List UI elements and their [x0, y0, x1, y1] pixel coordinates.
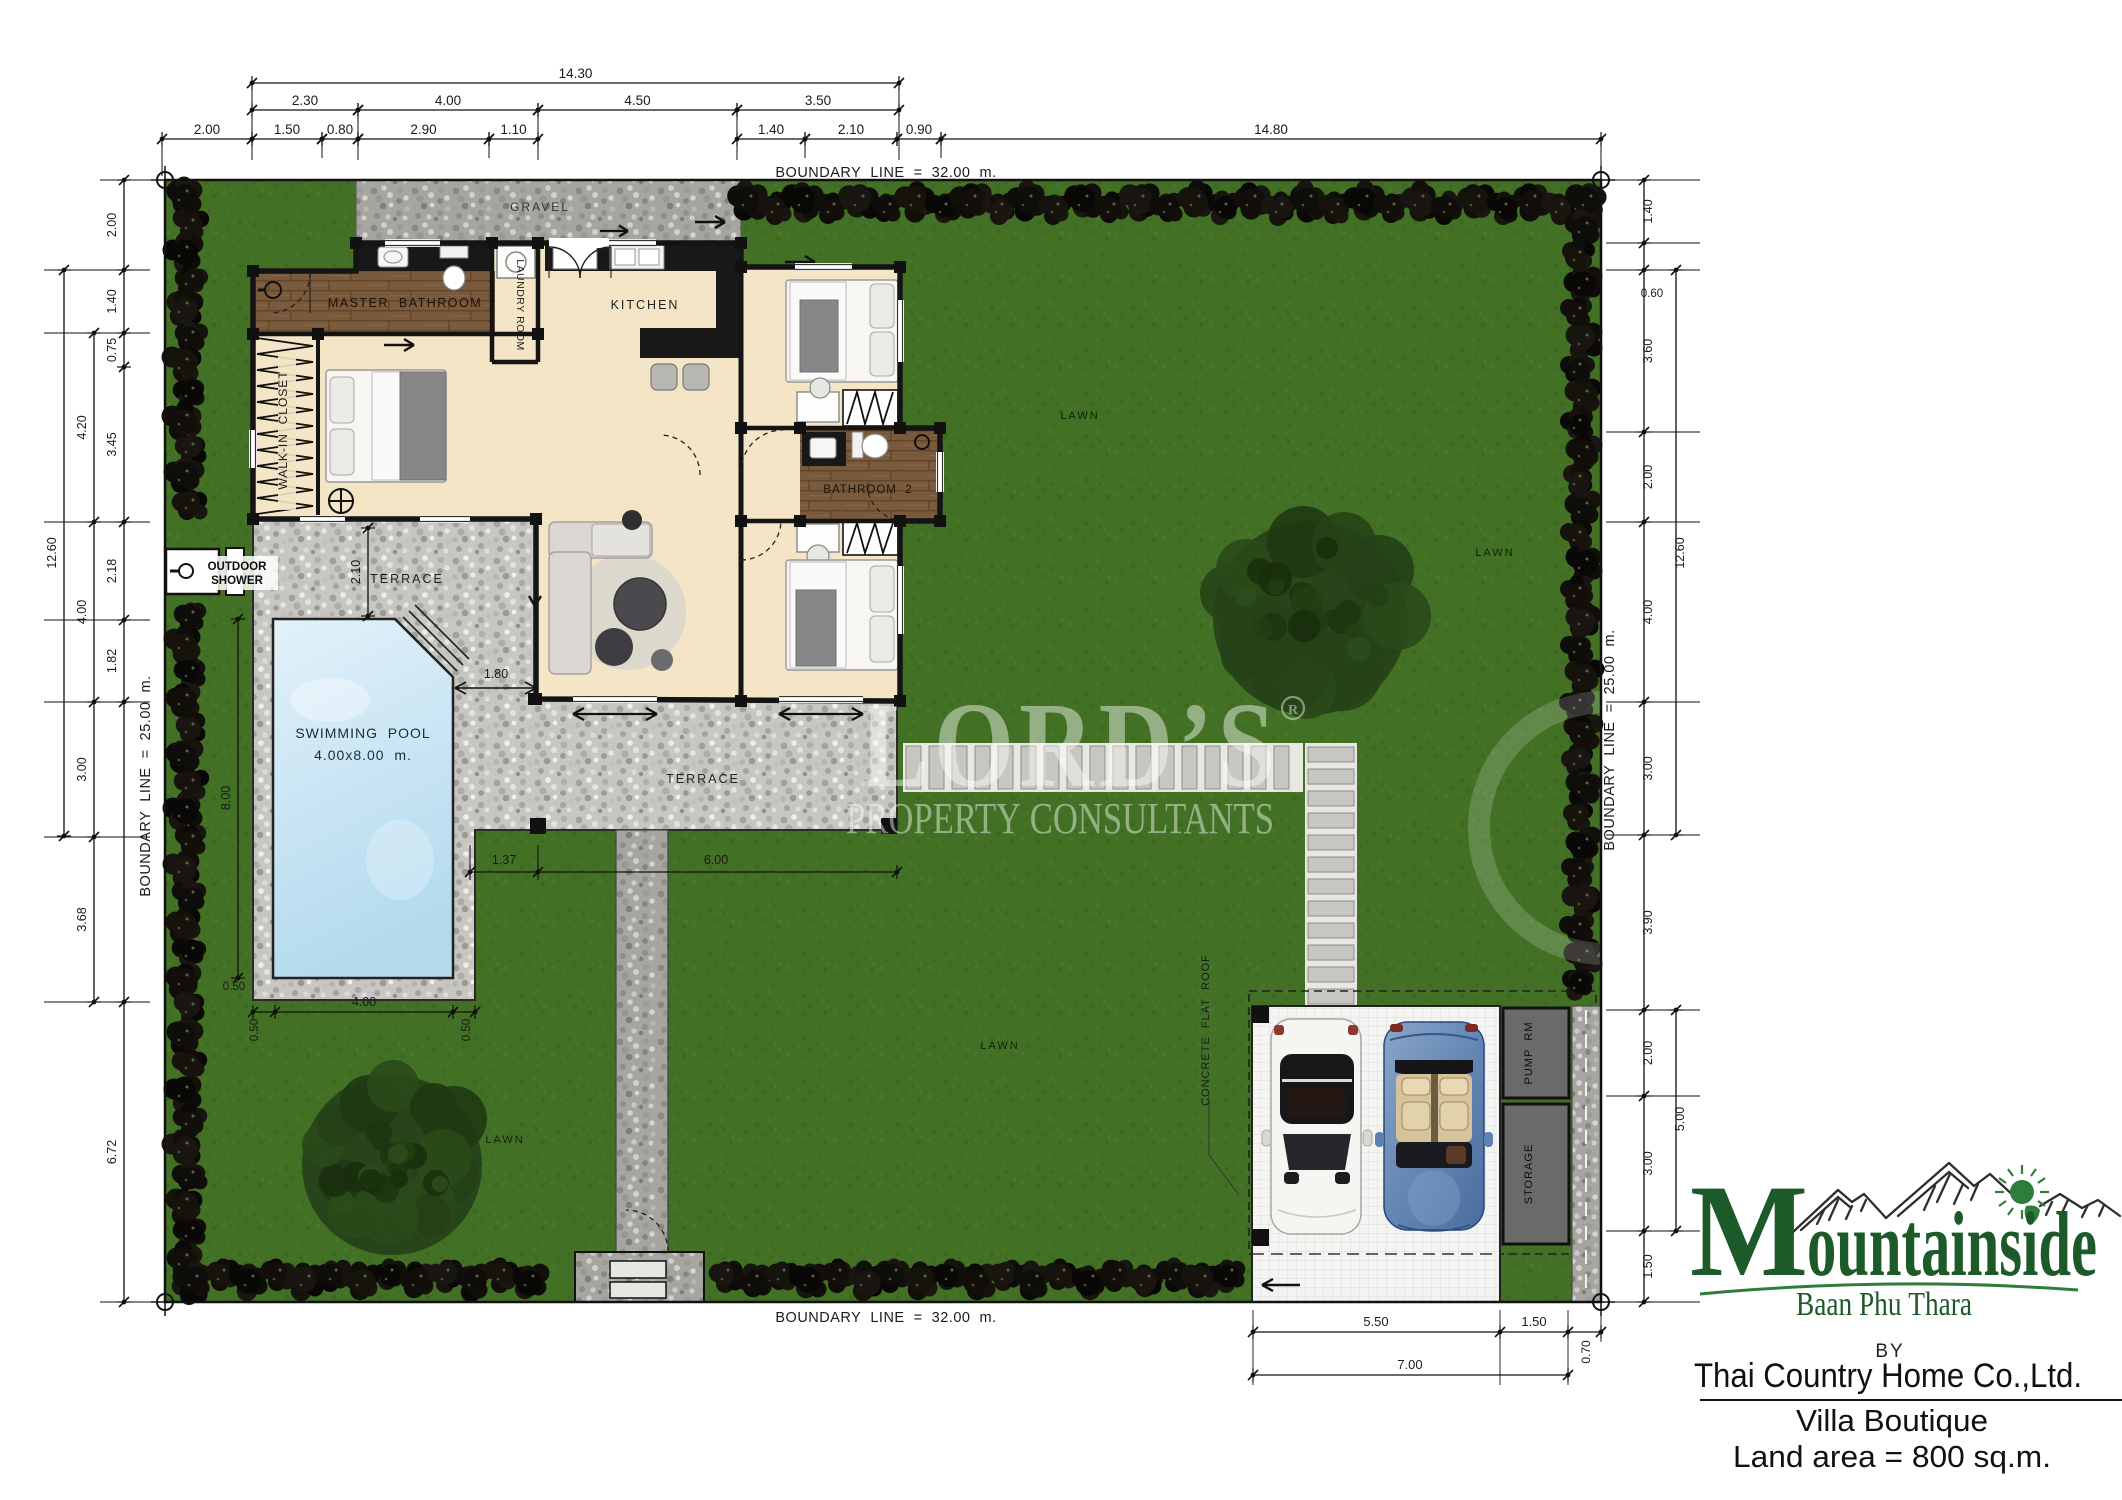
- svg-text:2.18: 2.18: [105, 559, 119, 583]
- svg-text:3.00: 3.00: [1641, 1151, 1655, 1175]
- svg-text:ountainside: ountainside: [1807, 1193, 2097, 1295]
- svg-text:1.37: 1.37: [492, 853, 516, 867]
- svg-text:BOUNDARY LINE = 25.00 m.: BOUNDARY LINE = 25.00 m.: [1602, 629, 1618, 850]
- svg-text:0.60: 0.60: [1641, 288, 1663, 300]
- svg-text:LAUNDRY ROOM: LAUNDRY ROOM: [514, 259, 526, 351]
- svg-text:WALK-IN CLOSET: WALK-IN CLOSET: [276, 370, 290, 489]
- svg-text:PROPERTY CONSULTANTS: PROPERTY CONSULTANTS: [846, 794, 1274, 843]
- svg-text:LAWN: LAWN: [1475, 547, 1514, 559]
- svg-text:0.90: 0.90: [906, 122, 932, 137]
- svg-text:Thai Country Home Co.,Ltd.: Thai Country Home Co.,Ltd.: [1694, 1357, 2082, 1395]
- svg-text:SWIMMING POOL: SWIMMING POOL: [295, 725, 430, 741]
- svg-text:6.72: 6.72: [105, 1140, 119, 1164]
- svg-text:R: R: [1288, 703, 1299, 718]
- svg-text:3.00: 3.00: [75, 757, 89, 781]
- svg-text:LAWN: LAWN: [1060, 410, 1099, 422]
- svg-text:0.50: 0.50: [461, 1019, 473, 1041]
- svg-text:1.40: 1.40: [105, 289, 119, 313]
- svg-text:2.30: 2.30: [292, 93, 318, 108]
- svg-text:0.70: 0.70: [1579, 1340, 1593, 1364]
- svg-text:1.80: 1.80: [484, 667, 508, 681]
- svg-text:PUMP RM: PUMP RM: [1523, 1022, 1535, 1085]
- svg-text:KITCHEN: KITCHEN: [611, 298, 680, 312]
- svg-text:SHOWER: SHOWER: [211, 575, 263, 587]
- svg-text:3.90: 3.90: [1641, 910, 1655, 934]
- svg-text:3.60: 3.60: [1641, 339, 1655, 363]
- svg-text:5.50: 5.50: [1363, 1314, 1388, 1329]
- svg-text:BATHROOM 2: BATHROOM 2: [823, 484, 912, 496]
- svg-text:12.60: 12.60: [1673, 537, 1687, 568]
- svg-text:8.00: 8.00: [219, 786, 233, 810]
- svg-text:2.00: 2.00: [105, 213, 119, 237]
- svg-text:4.00: 4.00: [1641, 600, 1655, 624]
- svg-text:BOUNDARY LINE = 25.00 m.: BOUNDARY LINE = 25.00 m.: [138, 675, 154, 896]
- svg-text:LORD’S: LORD’S: [860, 678, 1280, 813]
- svg-text:OUTDOOR: OUTDOOR: [208, 561, 267, 573]
- svg-text:4.00: 4.00: [352, 995, 376, 1009]
- svg-text:5.00: 5.00: [1673, 1107, 1687, 1131]
- svg-text:14.80: 14.80: [1254, 122, 1288, 137]
- svg-text:2.90: 2.90: [410, 122, 436, 137]
- svg-text:MASTER BATHROOM: MASTER BATHROOM: [328, 296, 482, 310]
- svg-text:3.50: 3.50: [805, 93, 831, 108]
- svg-text:1.40: 1.40: [758, 122, 784, 137]
- svg-text:4.20: 4.20: [75, 415, 89, 439]
- svg-text:M: M: [1690, 1157, 1808, 1304]
- svg-text:3.45: 3.45: [105, 432, 119, 456]
- svg-text:BOUNDARY LINE = 32.00 m.: BOUNDARY LINE = 32.00 m.: [775, 165, 996, 181]
- svg-text:3.00: 3.00: [1641, 756, 1655, 780]
- svg-text:TERRACE: TERRACE: [370, 572, 444, 586]
- svg-text:7.00: 7.00: [1397, 1357, 1422, 1372]
- svg-text:12.60: 12.60: [45, 537, 59, 568]
- svg-text:1.40: 1.40: [1641, 199, 1655, 223]
- svg-text:1.50: 1.50: [1521, 1314, 1546, 1329]
- svg-text:0.50: 0.50: [249, 1019, 261, 1041]
- svg-text:4.00: 4.00: [435, 93, 461, 108]
- svg-text:14.30: 14.30: [559, 66, 593, 81]
- svg-text:2.00: 2.00: [194, 122, 220, 137]
- svg-text:6.00: 6.00: [704, 853, 728, 867]
- svg-text:2.10: 2.10: [349, 560, 363, 584]
- svg-text:0.50: 0.50: [223, 981, 245, 993]
- svg-text:TERRACE: TERRACE: [666, 772, 740, 786]
- svg-text:1.10: 1.10: [500, 122, 526, 137]
- svg-text:LAWN: LAWN: [980, 1040, 1019, 1052]
- svg-text:GRAVEL: GRAVEL: [510, 200, 570, 214]
- svg-text:Villa Boutique: Villa Boutique: [1796, 1403, 1988, 1438]
- svg-text:STORAGE: STORAGE: [1523, 1144, 1535, 1205]
- svg-text:1.50: 1.50: [274, 122, 300, 137]
- svg-text:BOUNDARY LINE = 32.00 m.: BOUNDARY LINE = 32.00 m.: [775, 1310, 996, 1326]
- svg-text:2.10: 2.10: [838, 122, 864, 137]
- svg-text:4.00x8.00 m.: 4.00x8.00 m.: [314, 747, 412, 763]
- svg-text:0.75: 0.75: [105, 338, 119, 362]
- svg-text:4.50: 4.50: [624, 93, 650, 108]
- svg-text:1.82: 1.82: [105, 649, 119, 673]
- svg-text:4.00: 4.00: [75, 600, 89, 624]
- svg-text:2.00: 2.00: [1641, 465, 1655, 489]
- svg-text:Baan Phu Thara: Baan Phu Thara: [1796, 1286, 1972, 1323]
- svg-text:3.68: 3.68: [75, 907, 89, 931]
- svg-text:1.50: 1.50: [1641, 1254, 1655, 1278]
- svg-text:0.80: 0.80: [327, 122, 353, 137]
- svg-text:Land area = 800 sq.m.: Land area = 800 sq.m.: [1733, 1439, 2051, 1474]
- svg-text:LAWN: LAWN: [485, 1134, 524, 1146]
- svg-text:CONCRETE FLAT ROOF: CONCRETE FLAT ROOF: [1200, 954, 1212, 1106]
- svg-text:2.00: 2.00: [1641, 1041, 1655, 1065]
